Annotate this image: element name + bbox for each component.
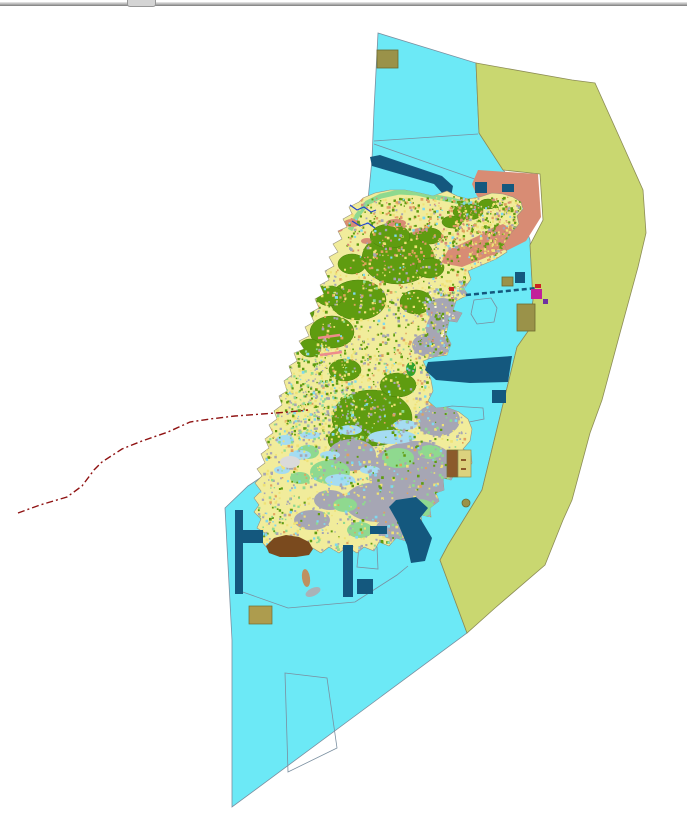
- panel-collapse-tab[interactable]: [127, 0, 156, 7]
- magenta-harbor-structure: [531, 289, 542, 299]
- navy-harbor-square-east: [492, 390, 506, 403]
- navy-bar-south: [370, 526, 387, 534]
- khaki-facility-large: [517, 304, 535, 331]
- khaki-marker-north: [377, 50, 398, 68]
- khaki-facility-small: [502, 277, 513, 286]
- navy-dock-rect-north-2: [502, 184, 514, 192]
- purple-harbor-dot: [543, 299, 548, 304]
- facility-mark-1: [461, 459, 466, 461]
- facility-mark-2: [461, 468, 466, 470]
- navy-jetty-south: [343, 545, 353, 597]
- map-viewport: [0, 0, 687, 821]
- navy-facility-small: [515, 272, 525, 283]
- navy-platform-south: [357, 579, 373, 594]
- navy-dock-rect-north: [475, 182, 487, 193]
- khaki-facility-southeast: [458, 450, 471, 477]
- map-canvas[interactable]: [0, 0, 687, 821]
- light-gray-coast-patch: [280, 456, 300, 468]
- red-harbor-mark: [535, 284, 541, 288]
- khaki-buoy-dot: [462, 499, 470, 507]
- tan-marker-south: [249, 606, 272, 624]
- brown-facility-southeast: [447, 450, 458, 477]
- window-edge-bar: [0, 2, 687, 6]
- red-coast-dot: [449, 287, 454, 291]
